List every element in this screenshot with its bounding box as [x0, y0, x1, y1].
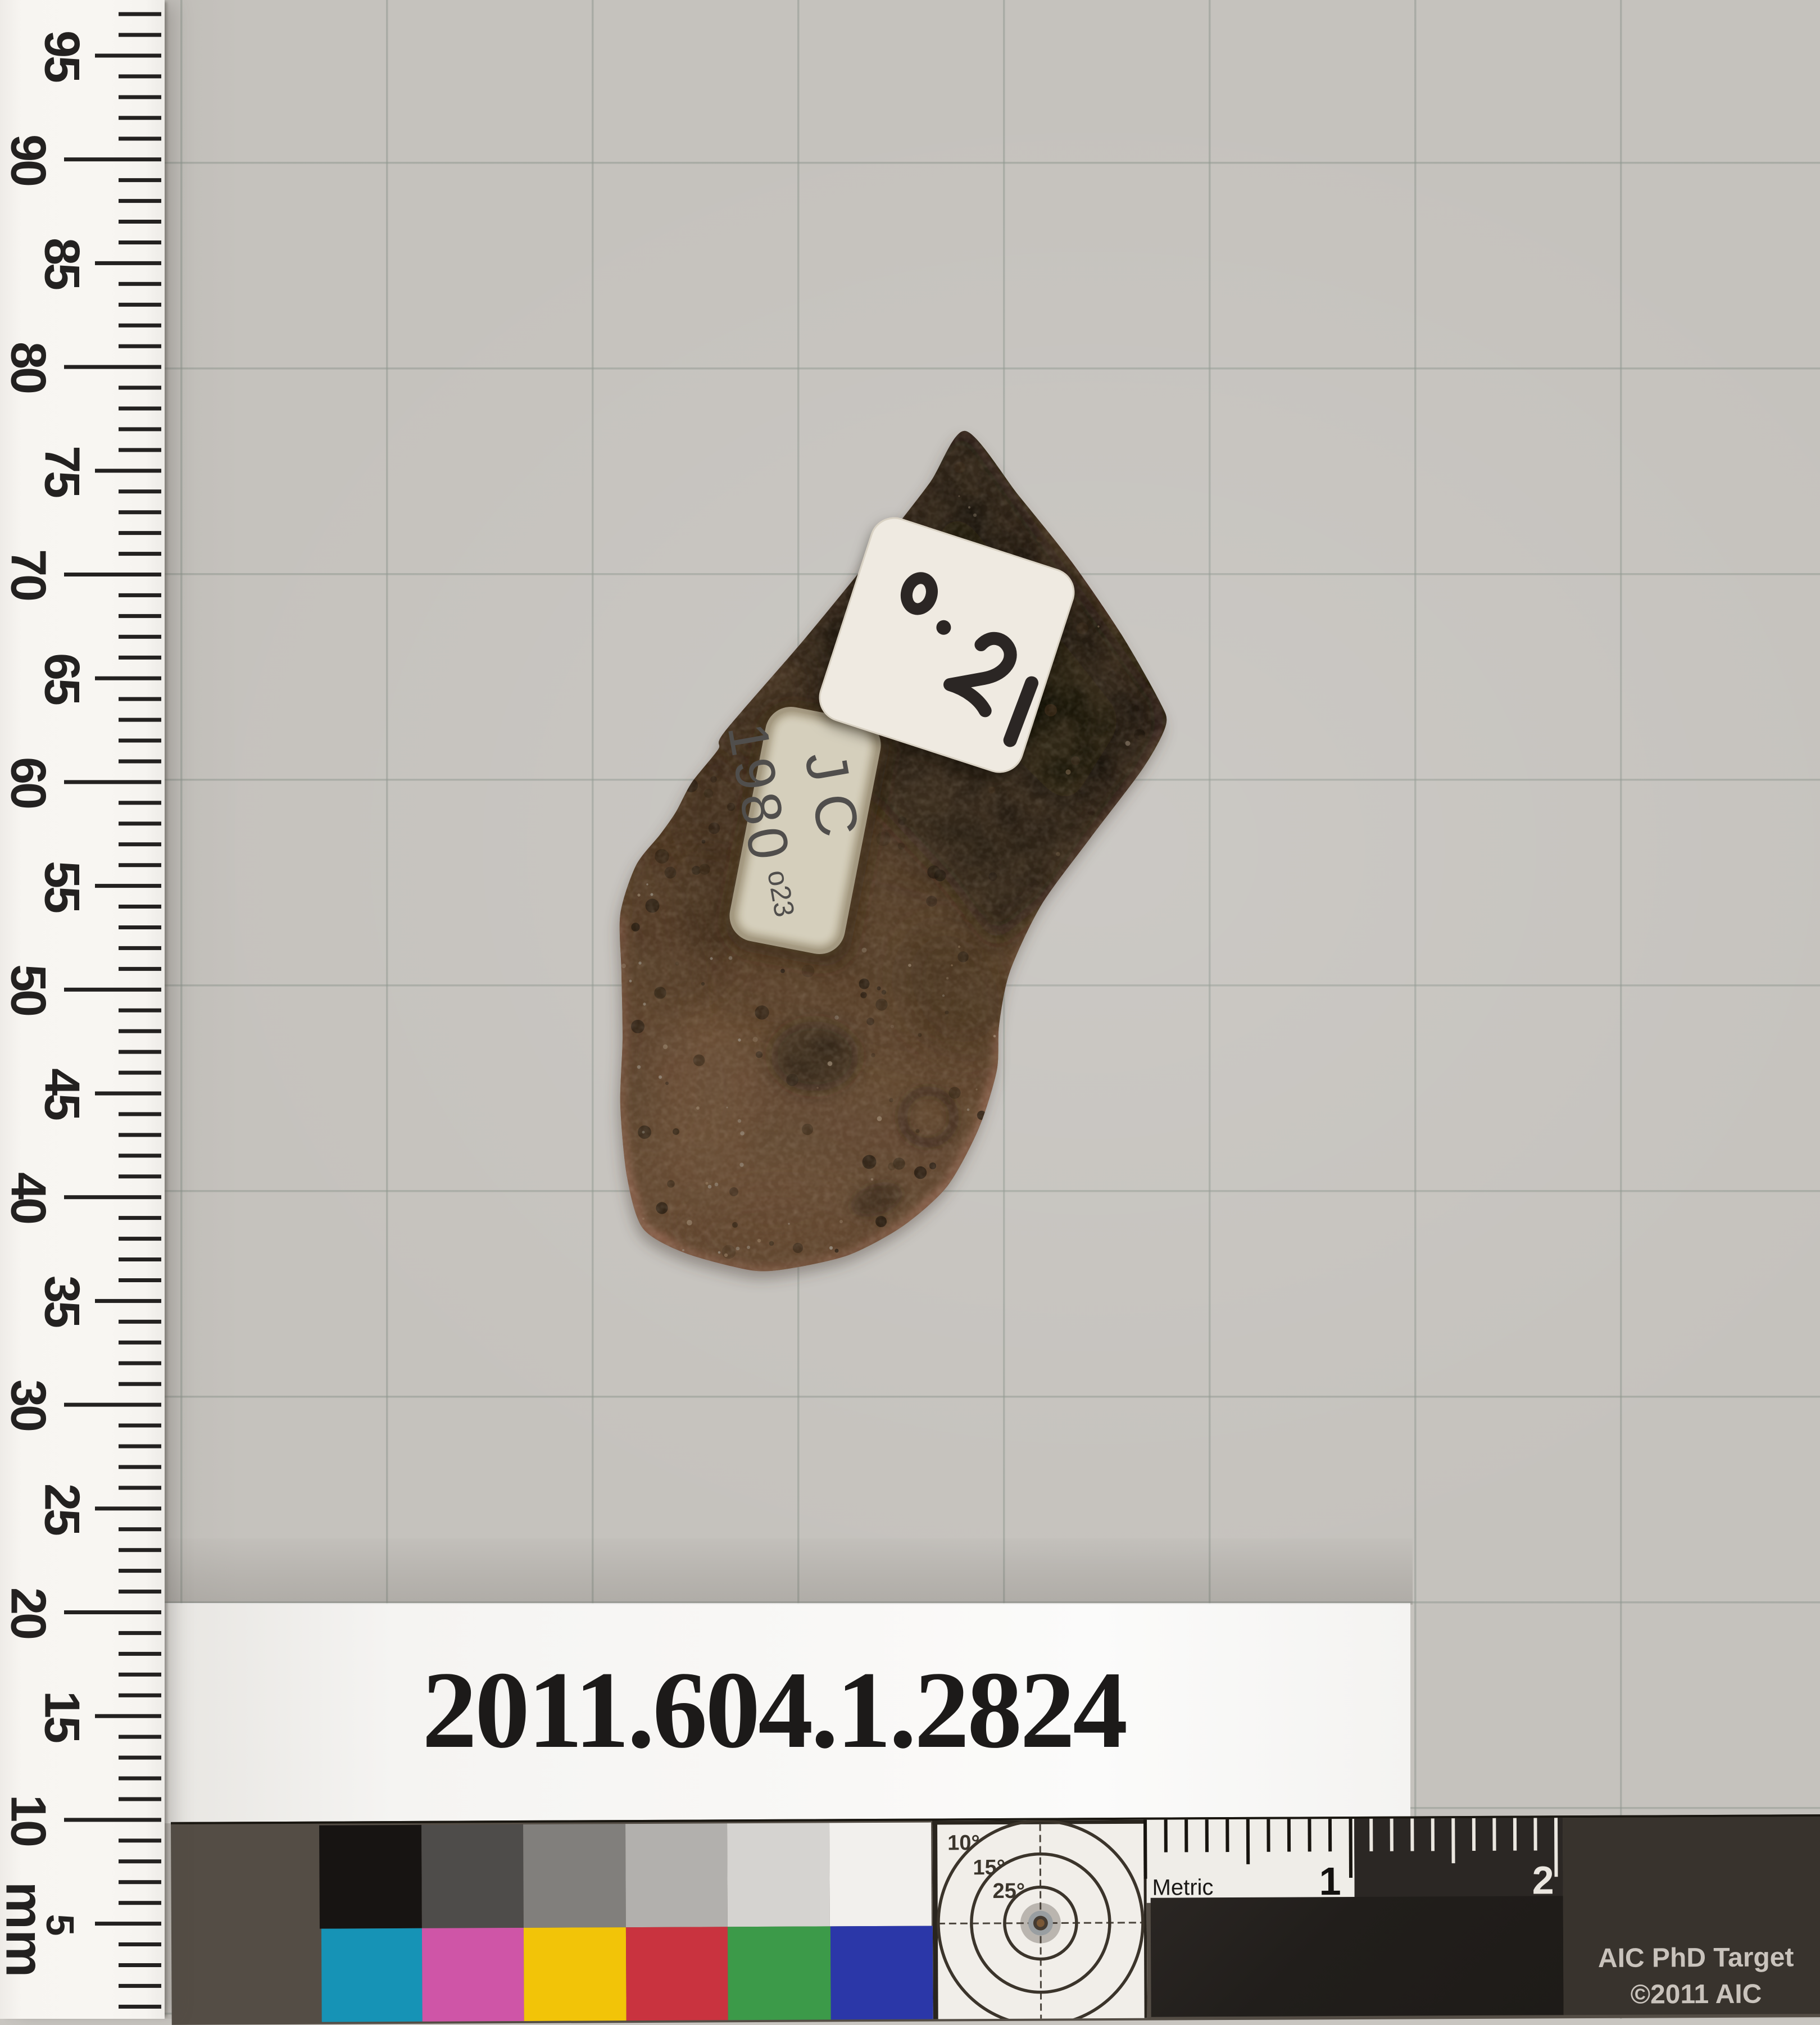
svg-text:95: 95	[35, 30, 90, 82]
svg-text:65: 65	[35, 653, 90, 705]
svg-text:45: 45	[35, 1068, 90, 1120]
svg-text:50: 50	[1, 964, 57, 1015]
svg-text:90: 90	[1, 134, 57, 185]
svg-text:2: 2	[1532, 1858, 1554, 1902]
svg-text:Metric: Metric	[1152, 1875, 1213, 1900]
svg-text:85: 85	[35, 238, 90, 289]
svg-text:40: 40	[1, 1172, 57, 1223]
svg-text:AIC PhD Target: AIC PhD Target	[1598, 1942, 1794, 1973]
svg-text:25: 25	[35, 1483, 90, 1535]
svg-text:30: 30	[1, 1379, 57, 1431]
svg-text:mm: mm	[0, 1882, 55, 1978]
svg-text:80: 80	[1, 342, 57, 393]
svg-text:20: 20	[1, 1587, 57, 1638]
svg-text:10: 10	[1, 1795, 57, 1846]
svg-text:1: 1	[1319, 1859, 1341, 1903]
svg-text:55: 55	[35, 861, 90, 912]
svg-text:15: 15	[35, 1691, 90, 1742]
svg-text:75: 75	[35, 446, 90, 497]
svg-text:60: 60	[1, 757, 57, 808]
svg-text:35: 35	[35, 1275, 90, 1327]
svg-text:©2011 AIC: ©2011 AIC	[1631, 1979, 1762, 2010]
svg-text:70: 70	[1, 549, 57, 600]
